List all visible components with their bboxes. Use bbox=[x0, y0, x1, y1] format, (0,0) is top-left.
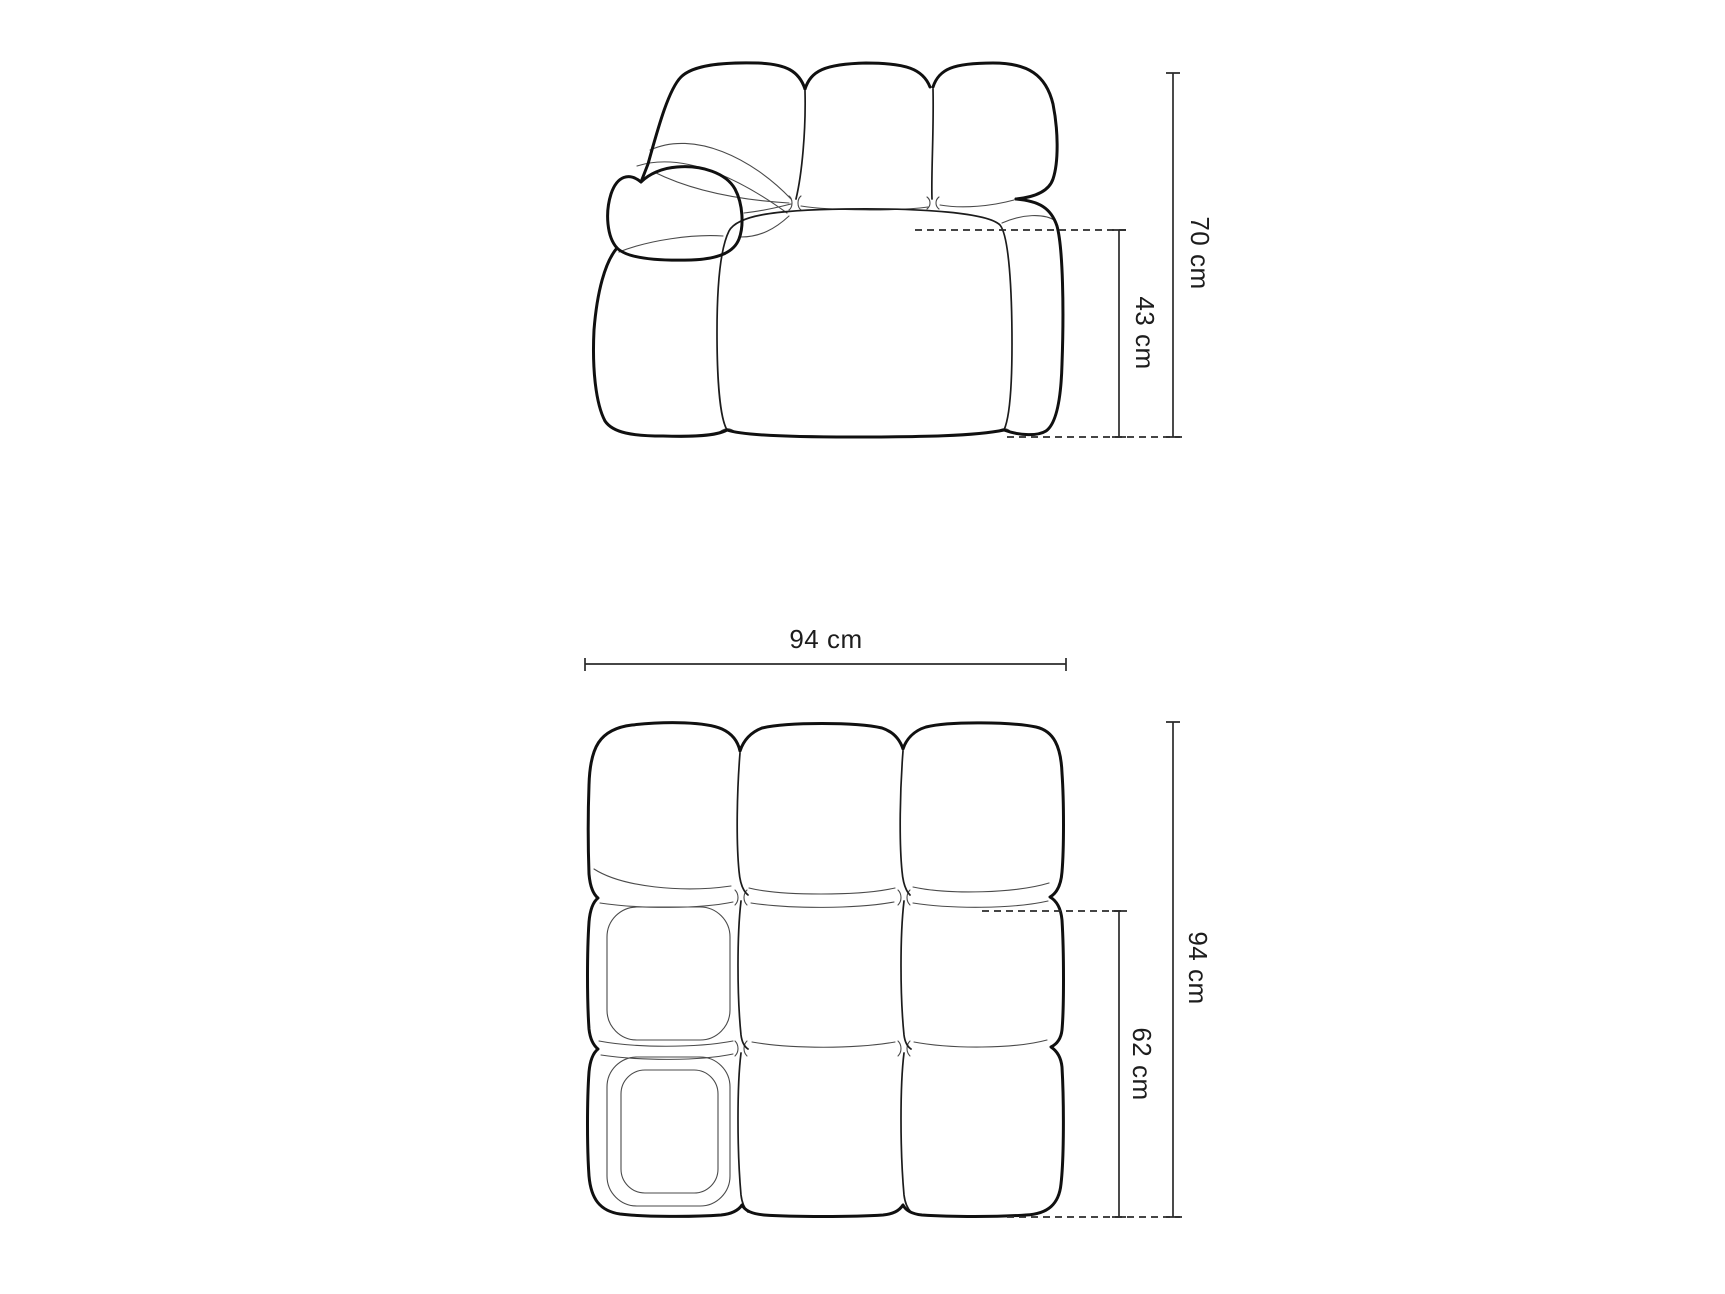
dimension-94cm-depth-line bbox=[1166, 722, 1180, 1217]
top-view-interior-lines bbox=[594, 869, 1049, 1206]
dimension-label-seat-depth: 62 cm bbox=[1129, 1027, 1155, 1100]
dimension-label-seat-height: 43 cm bbox=[1132, 296, 1158, 369]
dimension-label-depth: 94 cm bbox=[1185, 931, 1211, 1004]
dimension-70cm-line bbox=[1166, 73, 1180, 437]
side-view-seams bbox=[717, 89, 1012, 430]
side-view-drawing bbox=[593, 63, 1183, 437]
dimension-94cm-width-line bbox=[585, 658, 1066, 671]
sofa-side-outline bbox=[593, 63, 1062, 437]
top-view-dimension-lines bbox=[585, 658, 1183, 1217]
dimension-62cm-line bbox=[1112, 911, 1126, 1217]
dimension-43cm-line bbox=[1112, 230, 1126, 437]
side-view-interior-lines bbox=[619, 143, 1056, 431]
top-view-seams bbox=[737, 751, 911, 1212]
sofa-top-outline bbox=[588, 723, 1064, 1217]
dimension-label-width: 94 cm bbox=[789, 626, 862, 652]
dimension-label-total-height: 70 cm bbox=[1187, 216, 1213, 289]
product-dimension-sheet: { "canvas": { "width": 1725, "height": 1… bbox=[0, 0, 1725, 1294]
side-view-dimension-lines bbox=[915, 73, 1183, 437]
top-view-drawing bbox=[585, 658, 1183, 1217]
